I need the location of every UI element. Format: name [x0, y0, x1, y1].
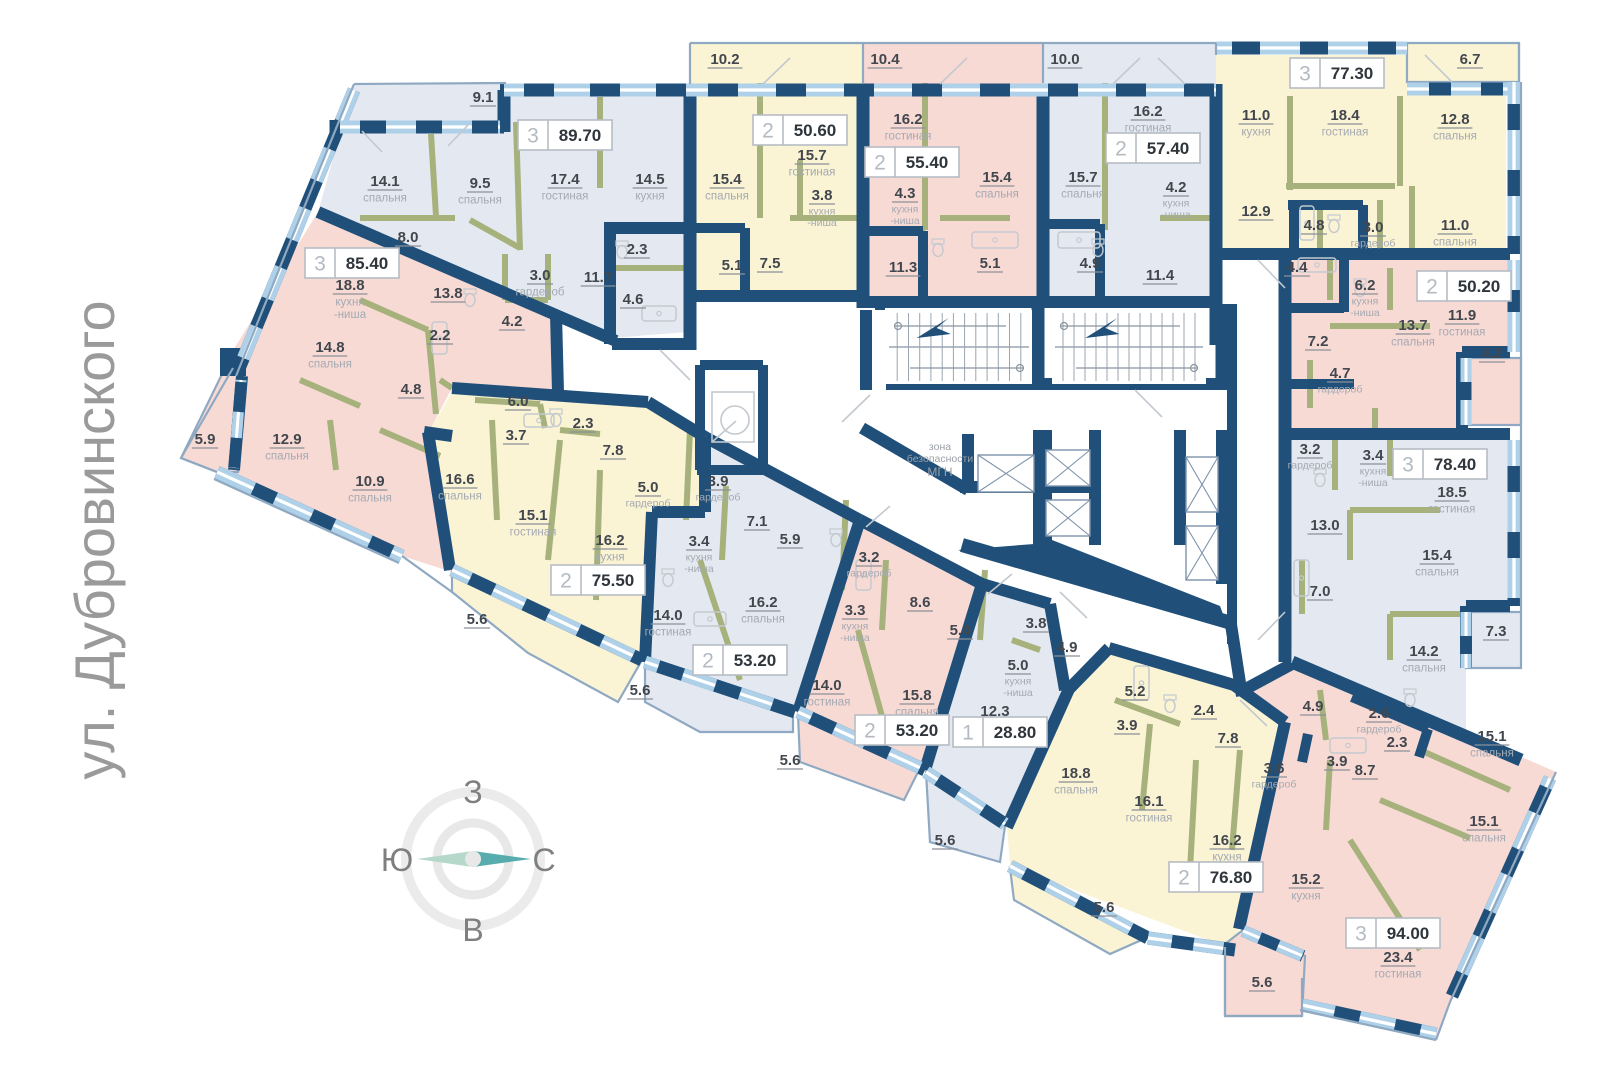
svg-text:гостиная: гостиная [1429, 504, 1476, 516]
svg-text:17.4: 17.4 [550, 171, 580, 188]
svg-text:кухня: кухня [335, 297, 364, 309]
svg-text:гостиная: гостиная [789, 167, 836, 179]
svg-text:14.1: 14.1 [370, 173, 399, 190]
svg-text:спальня: спальня [308, 359, 352, 371]
svg-text:-ниша: -ниша [1358, 477, 1388, 489]
svg-text:15.2: 15.2 [1291, 871, 1320, 888]
svg-text:5.9: 5.9 [780, 531, 801, 548]
svg-text:5.6: 5.6 [1094, 899, 1115, 916]
svg-text:78.40: 78.40 [1434, 455, 1477, 474]
svg-text:2: 2 [702, 650, 714, 673]
svg-text:3.0: 3.0 [530, 267, 551, 284]
svg-text:11.0: 11.0 [1242, 107, 1270, 124]
svg-text:16.2: 16.2 [893, 111, 922, 128]
svg-text:75.50: 75.50 [592, 571, 635, 590]
svg-text:3.2: 3.2 [1300, 441, 1321, 458]
svg-text:безопасности: безопасности [907, 453, 974, 465]
svg-text:5.1: 5.1 [980, 255, 1001, 272]
svg-text:2.3: 2.3 [1387, 734, 1408, 751]
svg-text:4.8: 4.8 [1304, 217, 1325, 234]
svg-text:13.7: 13.7 [1398, 317, 1427, 334]
svg-text:12.9: 12.9 [272, 431, 301, 448]
svg-text:спальня: спальня [1415, 567, 1459, 579]
svg-text:гостиная: гостиная [1439, 327, 1486, 339]
svg-text:4.9: 4.9 [1080, 255, 1101, 272]
svg-text:кухня: кухня [1163, 198, 1190, 210]
svg-text:5.9: 5.9 [195, 431, 216, 448]
svg-text:3.0: 3.0 [1363, 219, 1384, 236]
svg-text:7.8: 7.8 [1218, 730, 1239, 747]
svg-text:3.8: 3.8 [812, 187, 833, 204]
svg-text:5.6: 5.6 [467, 611, 488, 628]
svg-text:7.8: 7.8 [603, 442, 624, 459]
svg-text:9.5: 9.5 [470, 175, 491, 192]
svg-text:2: 2 [874, 152, 886, 175]
svg-text:16.2: 16.2 [595, 532, 624, 549]
svg-text:15.7: 15.7 [1068, 169, 1097, 186]
svg-text:кухня: кухня [686, 552, 713, 564]
svg-text:15.8: 15.8 [902, 687, 931, 704]
svg-text:4.9: 4.9 [1303, 698, 1324, 715]
svg-text:57.40: 57.40 [1147, 139, 1190, 158]
svg-text:гардероб: гардероб [847, 568, 892, 580]
svg-text:7.3: 7.3 [1486, 623, 1507, 640]
svg-text:16.2: 16.2 [1133, 103, 1162, 120]
svg-text:гостиная: гостиная [885, 131, 932, 143]
svg-text:18.5: 18.5 [1437, 484, 1466, 501]
svg-text:1: 1 [962, 722, 974, 745]
svg-text:2: 2 [1426, 276, 1438, 299]
svg-text:4.3: 4.3 [895, 185, 916, 202]
svg-text:гостиная: гостиная [1322, 127, 1369, 139]
svg-text:спальня: спальня [1433, 131, 1477, 143]
svg-text:15.7: 15.7 [797, 147, 826, 164]
svg-text:гардероб: гардероб [516, 287, 565, 299]
svg-text:15.1: 15.1 [1477, 728, 1506, 745]
svg-text:2.3: 2.3 [573, 415, 594, 432]
svg-text:гостиная: гостиная [1375, 969, 1422, 981]
svg-text:14.5: 14.5 [635, 171, 664, 188]
svg-text:В: В [462, 912, 483, 948]
svg-text:кухня: кухня [1360, 466, 1387, 478]
svg-text:53.20: 53.20 [896, 721, 939, 740]
svg-text:10.9: 10.9 [355, 473, 384, 490]
svg-text:5.4: 5.4 [950, 622, 972, 639]
svg-text:16.1: 16.1 [1134, 793, 1163, 810]
svg-text:кухня: кухня [892, 204, 919, 216]
svg-text:2: 2 [560, 570, 572, 593]
svg-text:5.6: 5.6 [630, 682, 651, 699]
svg-text:3.9: 3.9 [1327, 753, 1348, 770]
svg-text:5.1: 5.1 [722, 257, 743, 274]
svg-text:5.6: 5.6 [1252, 974, 1273, 991]
svg-text:50.60: 50.60 [794, 121, 837, 140]
svg-text:кухня: кухня [809, 206, 836, 218]
svg-text:кухня: кухня [635, 191, 664, 203]
svg-text:5.0: 5.0 [1008, 657, 1029, 674]
svg-text:3.7: 3.7 [506, 427, 527, 444]
svg-text:спальня: спальня [1054, 785, 1098, 797]
svg-text:спальня: спальня [1402, 663, 1446, 675]
svg-text:4.2: 4.2 [502, 313, 523, 330]
svg-text:4.9: 4.9 [1057, 639, 1078, 656]
svg-text:кухня: кухня [1291, 891, 1320, 903]
svg-text:15.4: 15.4 [982, 169, 1012, 186]
svg-text:5.6: 5.6 [935, 832, 956, 849]
svg-text:кухня: кухня [1352, 296, 1379, 308]
svg-text:18.4: 18.4 [1330, 107, 1360, 124]
svg-text:2: 2 [1115, 138, 1127, 161]
svg-text:16.2: 16.2 [748, 594, 777, 611]
svg-text:11.3: 11.3 [889, 259, 917, 276]
svg-text:спальня: спальня [458, 195, 502, 207]
svg-text:15.1: 15.1 [1469, 813, 1498, 830]
svg-text:5.0: 5.0 [638, 479, 659, 496]
svg-text:7.5: 7.5 [760, 255, 781, 272]
svg-text:12.9: 12.9 [1241, 203, 1270, 220]
svg-text:6.7: 6.7 [1460, 51, 1481, 68]
svg-text:спальня: спальня [705, 191, 749, 203]
svg-text:89.70: 89.70 [559, 126, 602, 145]
svg-text:13.8: 13.8 [433, 285, 462, 302]
svg-text:10.0: 10.0 [1050, 51, 1079, 68]
svg-text:11.7: 11.7 [584, 269, 612, 286]
svg-text:3.6: 3.6 [1264, 760, 1285, 777]
svg-text:15.4: 15.4 [712, 171, 742, 188]
svg-text:15.4: 15.4 [1422, 547, 1452, 564]
svg-text:гардероб: гардероб [626, 498, 671, 510]
svg-text:14.0: 14.0 [812, 677, 841, 694]
svg-text:5.2: 5.2 [1125, 683, 1146, 700]
svg-text:МГН: МГН [927, 465, 952, 479]
svg-text:10.4: 10.4 [870, 51, 900, 68]
svg-text:гардероб: гардероб [1318, 384, 1363, 396]
svg-text:-ниша: -ниша [1003, 687, 1033, 699]
svg-text:гостиная: гостиная [510, 527, 557, 539]
svg-text:спальня: спальня [363, 193, 407, 205]
svg-text:11.9: 11.9 [1448, 307, 1476, 324]
svg-text:3: 3 [314, 253, 326, 276]
svg-text:спальня: спальня [741, 614, 785, 626]
svg-text:3.4: 3.4 [1363, 447, 1385, 464]
svg-text:гостиная: гостиная [1126, 813, 1173, 825]
svg-text:-ниша: -ниша [890, 215, 920, 227]
svg-text:гардероб: гардероб [1351, 238, 1396, 250]
svg-text:6.2: 6.2 [1355, 277, 1376, 294]
svg-text:ул. Дубровинского: ул. Дубровинского [63, 300, 126, 779]
svg-text:спальня: спальня [1433, 237, 1477, 249]
svg-text:3: 3 [1355, 923, 1367, 946]
svg-text:16.6: 16.6 [445, 471, 474, 488]
svg-text:7.1: 7.1 [747, 513, 768, 530]
svg-text:кухня: кухня [1241, 127, 1270, 139]
svg-text:4.7: 4.7 [1330, 365, 1351, 382]
svg-text:3: 3 [527, 125, 539, 148]
svg-text:спальня: спальня [1470, 748, 1514, 760]
svg-text:кухня: кухня [842, 621, 869, 633]
svg-text:гардероб: гардероб [696, 492, 741, 504]
svg-text:85.40: 85.40 [346, 254, 389, 273]
svg-text:-ниша: -ниша [807, 217, 837, 229]
svg-text:3.8: 3.8 [1026, 615, 1047, 632]
svg-text:53.20: 53.20 [734, 651, 777, 670]
svg-text:28.80: 28.80 [994, 723, 1037, 742]
svg-text:гостиная: гостиная [542, 191, 589, 203]
svg-text:С: С [532, 842, 555, 878]
svg-text:76.80: 76.80 [1210, 868, 1253, 887]
svg-text:З: З [463, 774, 482, 810]
svg-text:8.6: 8.6 [910, 594, 931, 611]
svg-text:12.8: 12.8 [1440, 111, 1469, 128]
svg-text:8.0: 8.0 [398, 229, 419, 246]
svg-text:2.6: 2.6 [1369, 705, 1390, 722]
svg-text:13.0: 13.0 [1310, 517, 1339, 534]
svg-text:гостиная: гостиная [645, 627, 692, 639]
svg-text:-ниша: -ниша [840, 632, 870, 644]
svg-text:11.0: 11.0 [1441, 217, 1469, 234]
svg-text:9.1: 9.1 [473, 89, 494, 106]
svg-text:спальня: спальня [438, 491, 482, 503]
svg-text:8.7: 8.7 [1355, 762, 1376, 779]
svg-text:-ниша: -ниша [334, 309, 367, 321]
svg-text:спальня: спальня [348, 493, 392, 505]
svg-text:-ниша: -ниша [1161, 209, 1191, 221]
svg-text:гардероб: гардероб [1252, 779, 1297, 791]
svg-text:-ниша: -ниша [684, 563, 714, 575]
svg-text:55.40: 55.40 [906, 153, 949, 172]
svg-text:4.4: 4.4 [1287, 259, 1309, 276]
svg-text:3: 3 [1299, 63, 1311, 86]
svg-text:3.4: 3.4 [689, 533, 711, 550]
svg-text:7.0: 7.0 [1310, 583, 1331, 600]
svg-text:5.6: 5.6 [780, 752, 801, 769]
svg-text:3.9: 3.9 [708, 473, 729, 490]
svg-text:спальня: спальня [975, 189, 1019, 201]
svg-text:зона: зона [929, 441, 951, 453]
svg-text:-ниша: -ниша [1350, 307, 1380, 319]
svg-text:спальня: спальня [265, 451, 309, 463]
svg-text:23.4: 23.4 [1383, 949, 1413, 966]
svg-text:гардероб: гардероб [1288, 460, 1333, 472]
svg-text:кухня: кухня [1005, 676, 1032, 688]
svg-text:2: 2 [864, 720, 876, 743]
svg-text:спальня: спальня [1061, 189, 1105, 201]
svg-text:4.2: 4.2 [1166, 179, 1187, 196]
svg-text:гостиная: гостиная [804, 697, 851, 709]
svg-text:7.2: 7.2 [1308, 333, 1329, 350]
svg-text:6.0: 6.0 [508, 393, 529, 410]
svg-text:спальня: спальня [1462, 833, 1506, 845]
svg-text:3.2: 3.2 [859, 549, 880, 566]
svg-text:Ю: Ю [381, 842, 413, 878]
svg-text:2.3: 2.3 [627, 241, 648, 258]
svg-text:14.0: 14.0 [653, 607, 682, 624]
svg-text:2.2: 2.2 [430, 327, 451, 344]
svg-text:11.4: 11.4 [1146, 267, 1175, 284]
svg-text:спальня: спальня [1391, 337, 1435, 349]
svg-text:18.8: 18.8 [1061, 765, 1090, 782]
svg-text:94.00: 94.00 [1387, 924, 1430, 943]
svg-text:77.30: 77.30 [1331, 64, 1374, 83]
svg-text:18.8: 18.8 [335, 277, 364, 294]
svg-text:14.2: 14.2 [1409, 643, 1438, 660]
svg-text:2: 2 [1178, 867, 1190, 890]
svg-text:3.3: 3.3 [845, 602, 866, 619]
svg-text:3.9: 3.9 [1117, 717, 1138, 734]
svg-text:15.1: 15.1 [518, 507, 547, 524]
svg-text:14.8: 14.8 [315, 339, 344, 356]
svg-text:16.2: 16.2 [1212, 832, 1241, 849]
svg-text:3: 3 [1402, 454, 1414, 477]
svg-text:2.4: 2.4 [1194, 702, 1216, 719]
svg-text:2: 2 [762, 120, 774, 143]
svg-text:10.2: 10.2 [710, 51, 739, 68]
svg-text:4.8: 4.8 [401, 381, 422, 398]
svg-text:кухня: кухня [595, 552, 624, 564]
svg-text:4.6: 4.6 [623, 291, 644, 308]
svg-text:50.20: 50.20 [1458, 277, 1501, 296]
svg-text:4.2: 4.2 [1482, 345, 1503, 362]
